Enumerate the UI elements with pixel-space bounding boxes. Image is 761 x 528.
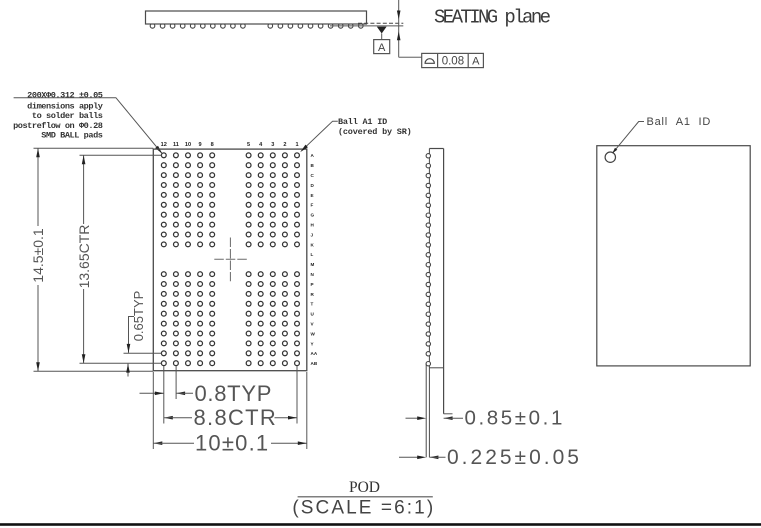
svg-text:14.5±0.1: 14.5±0.1 [30,228,46,283]
svg-text:A: A [472,56,480,68]
svg-text:11: 11 [173,142,179,148]
svg-text:Ball A1 ID: Ball A1 ID [647,116,712,128]
svg-text:AB: AB [311,361,318,366]
svg-text:postreflow on Φ0.28: postreflow on Φ0.28 [13,121,103,131]
svg-text:8.8CTR: 8.8CTR [194,405,278,430]
svg-text:J: J [311,232,314,237]
svg-text:0.65TYP: 0.65TYP [131,291,146,342]
svg-text:A: A [378,42,386,54]
svg-text:E: E [311,193,314,198]
svg-text:G: G [311,213,315,218]
svg-text:dimensions apply: dimensions apply [27,102,103,112]
svg-text:M: M [311,262,315,267]
svg-text:0.225±0.05: 0.225±0.05 [447,446,582,469]
svg-text:3: 3 [271,142,274,148]
svg-text:T: T [311,302,314,307]
svg-text:10: 10 [185,142,191,148]
svg-text:0.85±0.1: 0.85±0.1 [465,407,565,430]
svg-text:W: W [311,331,316,336]
svg-text:POD: POD [349,479,380,496]
svg-text:(covered by SR): (covered by SR) [338,127,412,137]
svg-text:10±0.1: 10±0.1 [195,431,269,456]
svg-text:Y: Y [311,341,314,346]
svg-text:0.08: 0.08 [442,56,464,68]
svg-text:5: 5 [247,142,250,148]
svg-text:AA: AA [311,351,318,356]
svg-text:SEATING plane: SEATING plane [434,7,551,29]
svg-text:8: 8 [211,142,214,148]
svg-text:F: F [311,203,314,208]
svg-text:13.65CTR: 13.65CTR [76,225,92,289]
svg-text:2: 2 [283,142,286,148]
svg-text:200XΦ0.312 ±0.05: 200XΦ0.312 ±0.05 [27,91,103,101]
svg-text:P: P [311,282,314,287]
svg-text:12: 12 [161,142,167,148]
svg-text:(SCALE =6:1): (SCALE =6:1) [292,498,435,519]
svg-text:to solder balls: to solder balls [32,111,103,121]
svg-text:1: 1 [295,142,298,148]
svg-text:L: L [311,252,314,257]
svg-text:Ball A1 ID: Ball A1 ID [338,117,387,127]
svg-text:SMD BALL pads: SMD BALL pads [41,131,102,141]
svg-text:0.8TYP: 0.8TYP [195,381,273,406]
svg-text:9: 9 [199,142,202,148]
